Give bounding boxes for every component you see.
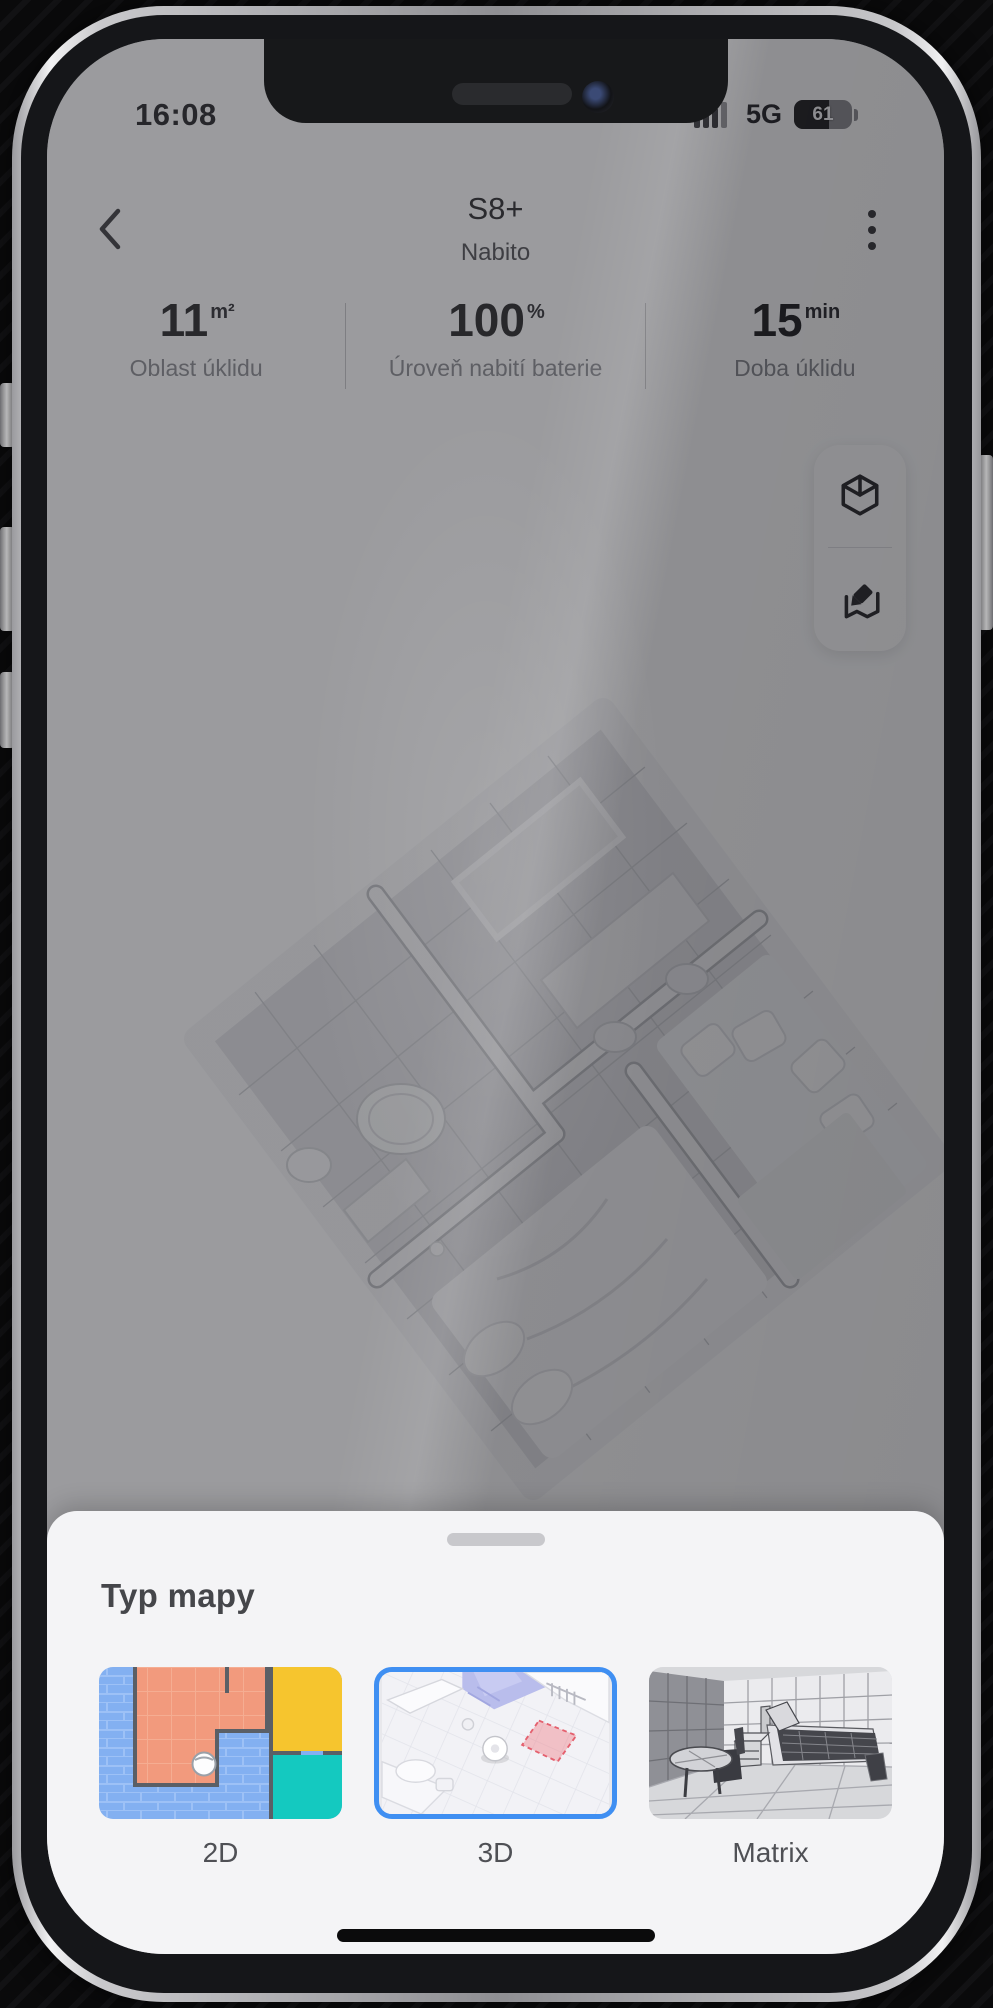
home-indicator[interactable] xyxy=(337,1929,655,1942)
sheet-title: Typ mapy xyxy=(101,1577,255,1615)
map-matrix-thumbnail xyxy=(649,1667,892,1819)
map-matrix-label: Matrix xyxy=(649,1837,892,1869)
phone-frame: 16:08 5G xyxy=(12,6,981,2002)
phone-mockup: 16:08 5G xyxy=(0,0,993,2008)
screen: 16:08 5G xyxy=(47,39,944,1954)
map-3d-thumbnail xyxy=(374,1667,617,1819)
phone-bezel: 16:08 5G xyxy=(21,15,972,1993)
map-2d-thumbnail xyxy=(99,1667,342,1819)
map-type-option-2d[interactable]: 2D xyxy=(99,1667,342,1869)
speaker-grille xyxy=(452,83,572,105)
map-type-sheet: Typ mapy xyxy=(47,1511,944,1954)
map-type-option-3d[interactable]: 3D xyxy=(374,1667,617,1869)
notch xyxy=(264,39,728,123)
front-camera xyxy=(582,81,614,113)
map-type-option-matrix[interactable]: Matrix xyxy=(649,1667,892,1869)
map-2d-label: 2D xyxy=(99,1837,342,1869)
sheet-drag-handle[interactable] xyxy=(447,1533,545,1546)
map-type-options: 2D xyxy=(47,1667,944,1869)
map-3d-label: 3D xyxy=(374,1837,617,1869)
